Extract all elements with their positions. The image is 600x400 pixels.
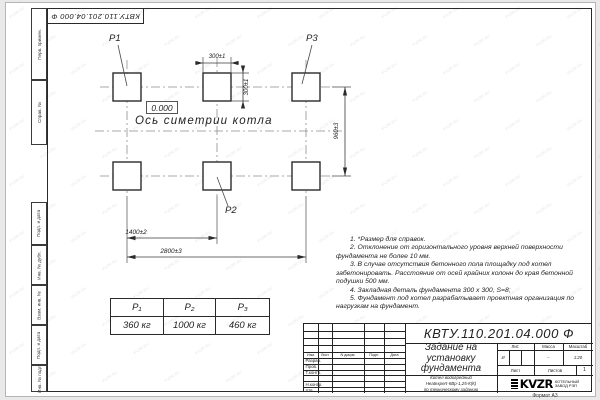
loads-table-value-p3: 460 кг	[216, 317, 269, 334]
loads-table-header-p3: P₃	[216, 299, 269, 317]
note-item: 4. Закладная деталь фундамента 300 х 300…	[336, 287, 590, 295]
kvzr-logo-text: KVZR	[520, 377, 553, 391]
sheet-label: Лист	[497, 365, 534, 375]
title-block: Изм. Лист N докум. Подп. Дата Разраб. Пр…	[303, 323, 592, 392]
load-point-label-p3: P3	[306, 33, 318, 44]
lit-value: И	[497, 350, 509, 365]
revision-col-data: Дата	[384, 352, 405, 358]
kvzr-logo: KVZR КОТЕЛЬНЫЙ ЗАВОД РЭП	[497, 375, 593, 393]
dimension-top-width: 300±1	[195, 54, 239, 60]
sheets-label: Листов	[534, 365, 576, 375]
kvzr-logo-bars-icon	[511, 379, 518, 389]
boiler-symmetry-axis-label: Ось симетрии котла	[135, 115, 273, 127]
revision-col-ndokum: N докум.	[332, 352, 364, 358]
technical-notes: 1. *Размер для справок. 2. Отклонение от…	[336, 236, 590, 312]
loads-table-value-p2: 1000 кг	[164, 317, 217, 334]
sheets-value: 1	[576, 365, 593, 375]
dimension-total-width: 2800±3	[149, 248, 193, 255]
doc-number: КВТУ.110.201.04.000 Ф	[405, 324, 593, 343]
loads-table-header-p1: P₁	[111, 299, 164, 317]
dimension-col-spacing: 1400±2	[114, 229, 158, 236]
dimension-top-height: 300±1	[244, 71, 254, 103]
kvzr-logo-caption: КОТЕЛЬНЫЙ ЗАВОД РЭП	[555, 380, 579, 389]
foundation-pads	[113, 73, 320, 190]
load-point-label-p2: P2	[225, 205, 237, 216]
scale-value: 1:20	[563, 350, 593, 365]
sign-row-utv: Утв.	[304, 387, 332, 393]
format-label: Формат А3	[505, 393, 585, 399]
mass-header: Масса	[534, 343, 563, 350]
loads-table-header-p2: P₂	[164, 299, 217, 317]
level-mark: 0.000	[146, 101, 178, 114]
drawing-subtitle: Котел водогрейный Heatexpert-КВр-1,25-К(…	[405, 375, 497, 393]
note-item: 3. В случае отсутствия бетонного пола пл…	[336, 261, 590, 286]
drawing-sheet-canvas: KVZR.RUKVZR.RUKVZR.RUKVZR.RUKVZR.RUKVZR.…	[0, 0, 600, 400]
mass-value: –	[534, 350, 563, 365]
drawing-title: Задание на установку фундамента	[405, 343, 497, 375]
loads-table: P₁ P₂ P₃ 360 кг 1000 кг 460 кг	[110, 298, 270, 335]
note-item: 2. Отклонение от горизонтального уровня …	[336, 244, 590, 261]
revision-col-podp: Подп.	[364, 352, 384, 358]
scale-header: Масштаб	[563, 343, 593, 350]
loads-table-value-p1: 360 кг	[111, 317, 164, 334]
dimension-row-spacing: 960±3	[334, 111, 344, 151]
lit-header: Лит.	[497, 343, 534, 350]
note-item: 5. Фундамент под котел разрабатывает про…	[336, 295, 590, 312]
load-point-label-p1: P1	[109, 33, 121, 44]
